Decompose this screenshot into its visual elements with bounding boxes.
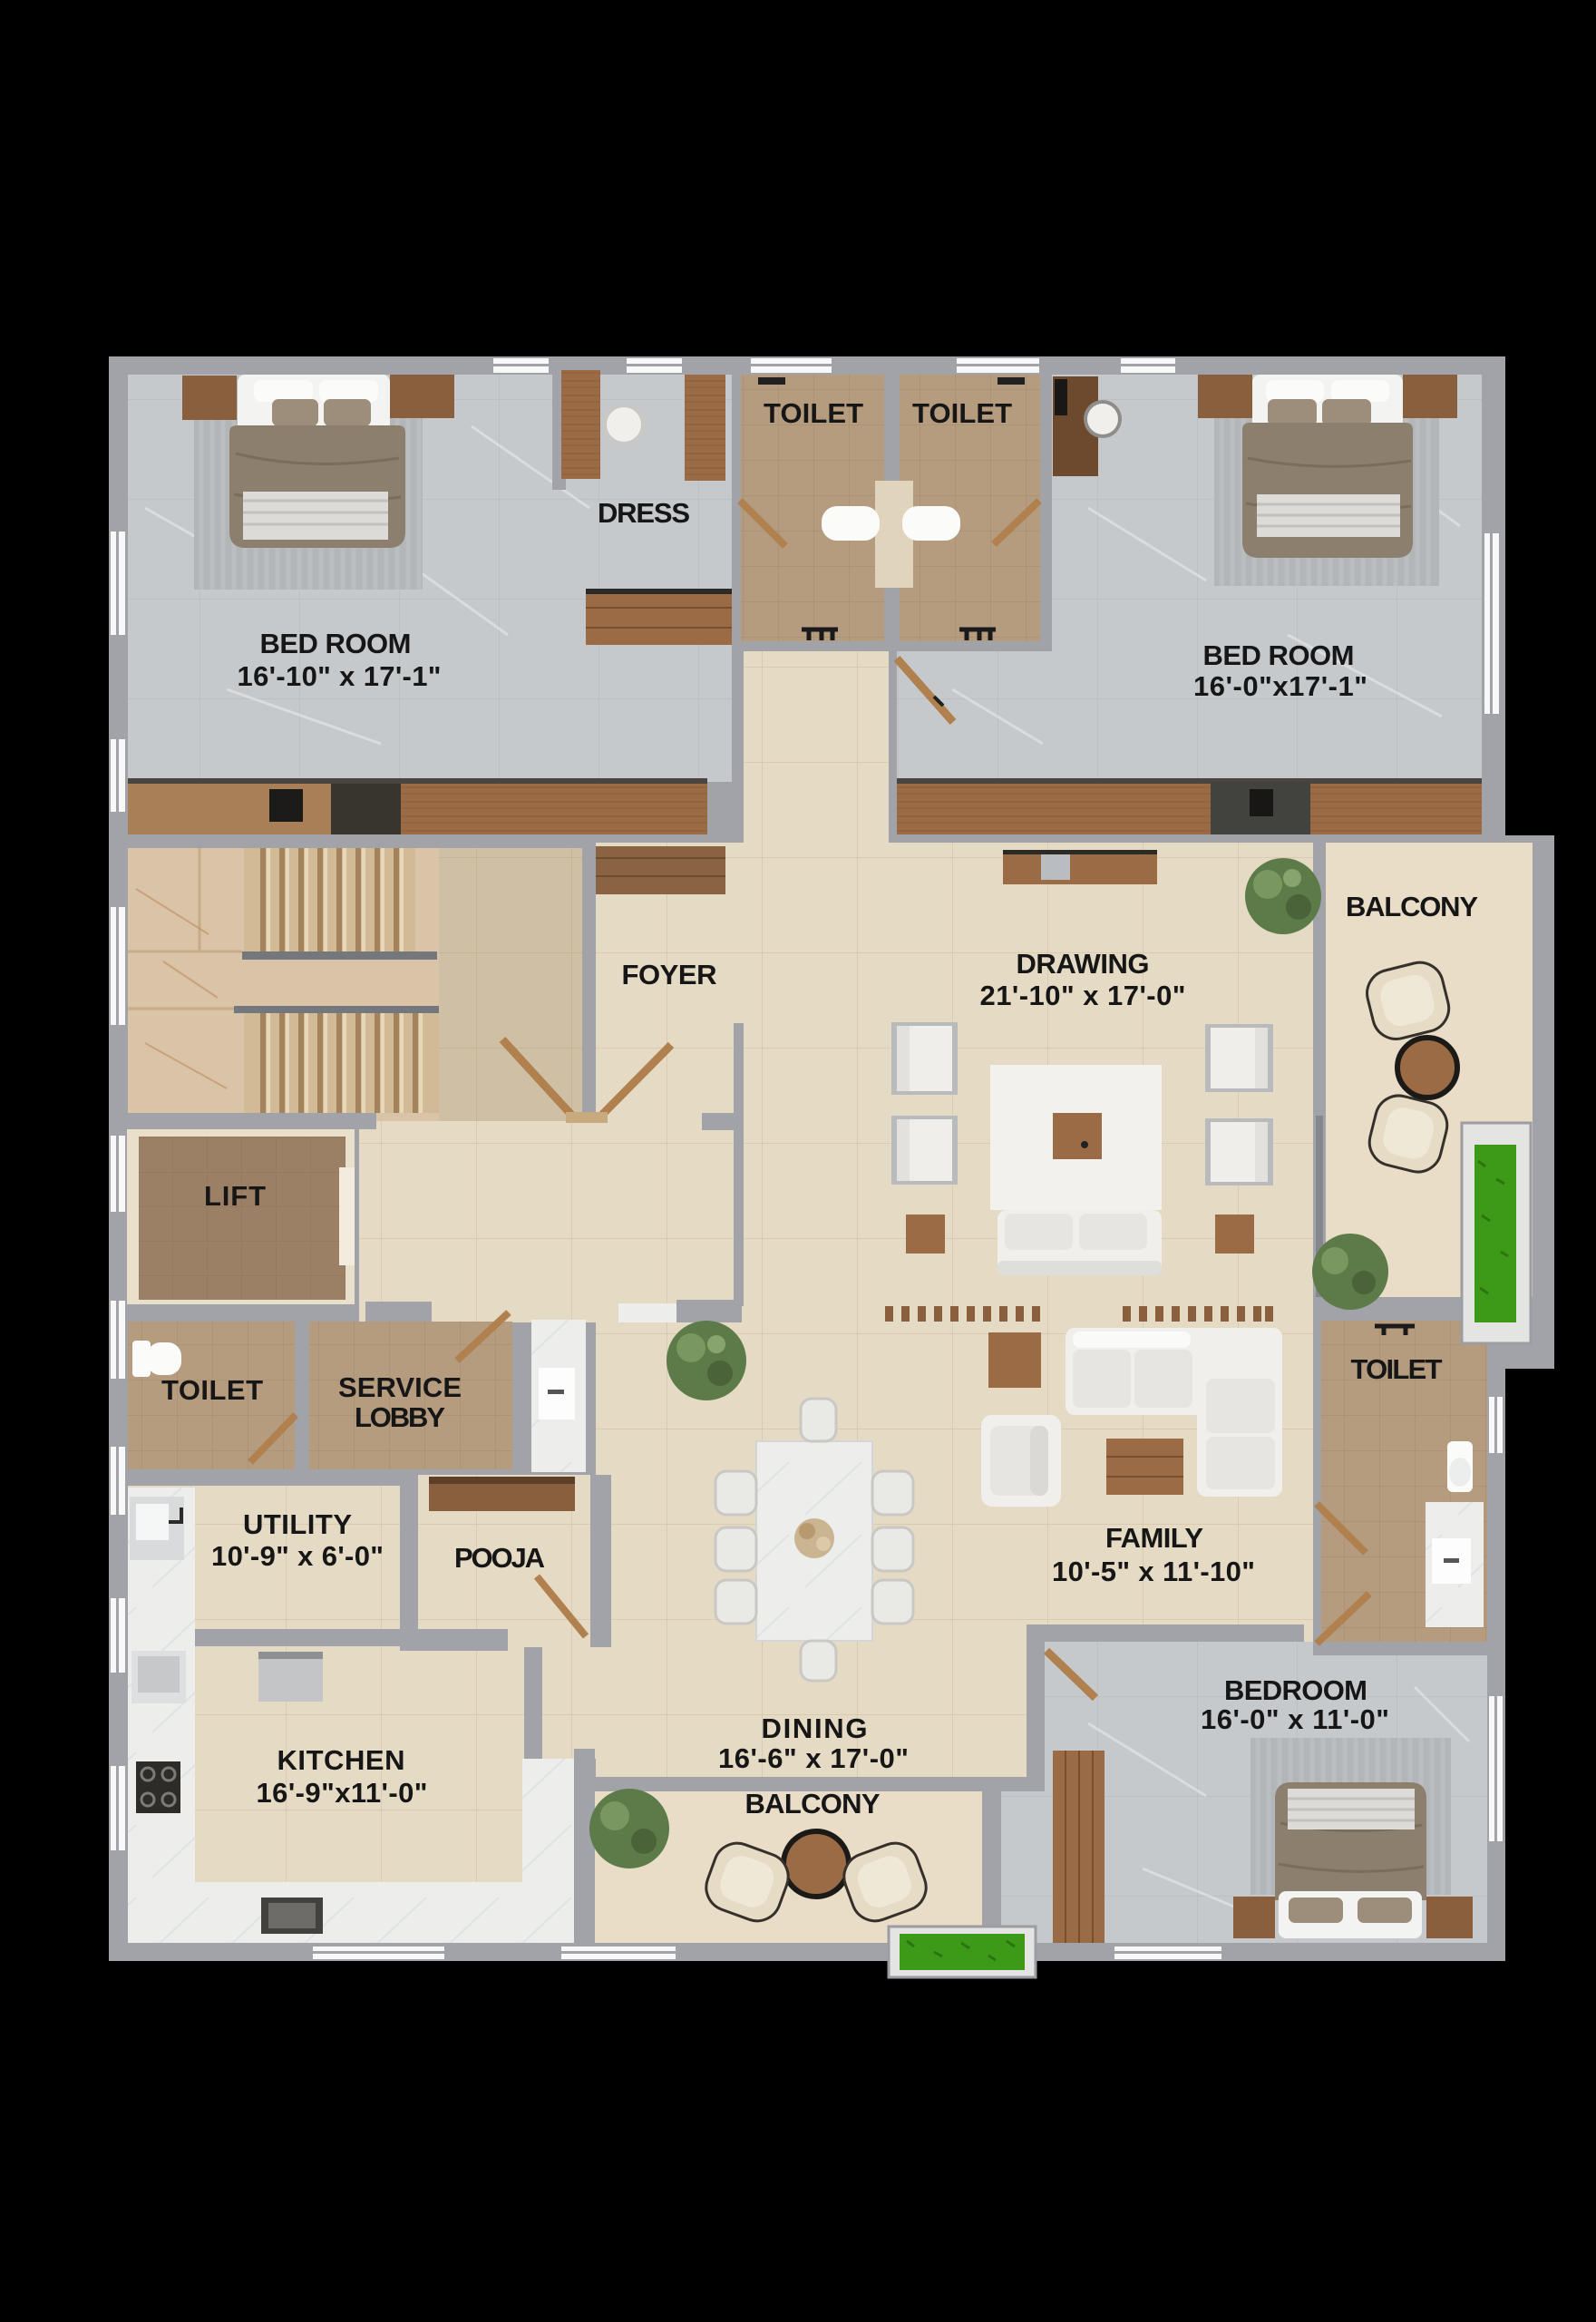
- svg-text:DRAWING: DRAWING: [1017, 948, 1150, 980]
- svg-text:LOBBY: LOBBY: [355, 1401, 445, 1433]
- svg-text:TOILET: TOILET: [912, 397, 1012, 429]
- svg-text:KITCHEN: KITCHEN: [277, 1744, 405, 1776]
- svg-text:LIFT: LIFT: [204, 1180, 266, 1212]
- svg-text:16'-10" x 17'-1": 16'-10" x 17'-1": [238, 660, 442, 692]
- svg-text:FOYER: FOYER: [622, 959, 717, 990]
- svg-text:16'-6" x 17'-0": 16'-6" x 17'-0": [718, 1742, 909, 1774]
- svg-text:21'-10" x 17'-0": 21'-10" x 17'-0": [980, 980, 1186, 1011]
- svg-text:DINING: DINING: [762, 1712, 868, 1744]
- svg-text:FAMILY: FAMILY: [1105, 1522, 1203, 1554]
- svg-text:16'-0" x 11'-0": 16'-0" x 11'-0": [1201, 1703, 1389, 1735]
- svg-text:SERVICE: SERVICE: [338, 1371, 462, 1403]
- svg-text:UTILITY: UTILITY: [243, 1508, 352, 1540]
- svg-text:TOILET: TOILET: [161, 1374, 263, 1406]
- svg-text:16'-0"x17'-1": 16'-0"x17'-1": [1193, 670, 1367, 702]
- svg-text:TOILET: TOILET: [1351, 1353, 1443, 1385]
- svg-text:BED ROOM: BED ROOM: [260, 628, 412, 659]
- svg-text:BALCONY: BALCONY: [745, 1788, 881, 1820]
- svg-text:POOJA: POOJA: [454, 1542, 545, 1574]
- svg-text:BALCONY: BALCONY: [1346, 891, 1478, 922]
- svg-text:TOILET: TOILET: [764, 397, 863, 429]
- svg-text:BED ROOM: BED ROOM: [1203, 639, 1355, 671]
- svg-text:DRESS: DRESS: [598, 497, 690, 529]
- svg-text:16'-9"x11'-0": 16'-9"x11'-0": [257, 1777, 428, 1809]
- svg-text:BEDROOM: BEDROOM: [1224, 1674, 1367, 1706]
- svg-text:10'-9" x 6'-0": 10'-9" x 6'-0": [211, 1540, 384, 1572]
- svg-text:10'-5" x 11'-10": 10'-5" x 11'-10": [1052, 1556, 1255, 1587]
